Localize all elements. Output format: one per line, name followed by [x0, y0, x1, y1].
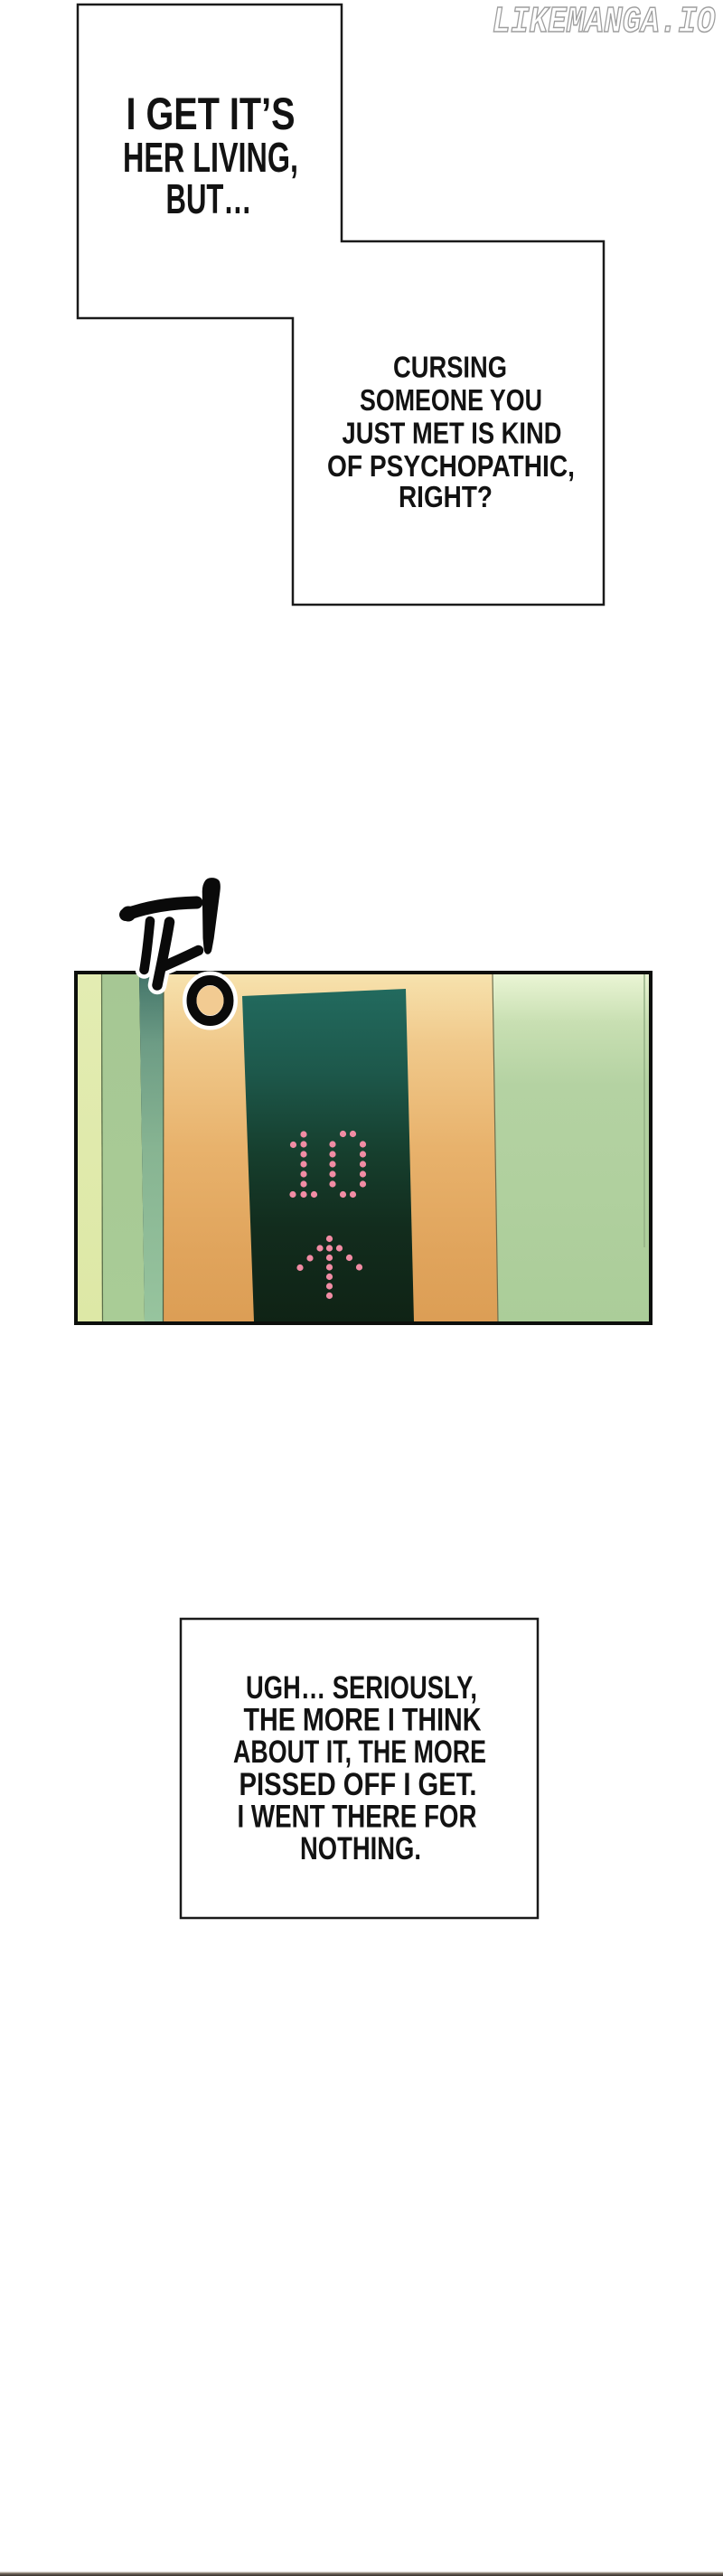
- svg-text:SOMEONE YOU: SOMEONE YOU: [360, 383, 542, 417]
- svg-text:PISSED OFF I GET.: PISSED OFF I GET.: [239, 1767, 477, 1802]
- svg-text:LIKEMANGA.IO: LIKEMANGA.IO: [493, 2, 716, 43]
- svg-text:CURSING: CURSING: [393, 351, 507, 384]
- svg-text:UGH… SERIOUSLY,: UGH… SERIOUSLY,: [246, 1670, 477, 1706]
- svg-text:I WENT THERE FOR: I WENT THERE FOR: [238, 1799, 477, 1834]
- svg-text:ABOUT IT, THE MORE: ABOUT IT, THE MORE: [233, 1735, 486, 1770]
- svg-text:NOTHING.: NOTHING.: [300, 1831, 421, 1866]
- svg-text:BUT…: BUT…: [166, 175, 252, 222]
- svg-text:OF PSYCHOPATHIC,: OF PSYCHOPATHIC,: [327, 449, 575, 483]
- svg-text:I GET IT’S: I GET IT’S: [127, 89, 296, 139]
- svg-text:RIGHT?: RIGHT?: [399, 480, 493, 513]
- svg-text:HER LIVING,: HER LIVING,: [123, 134, 298, 181]
- svg-text:JUST MET IS KIND: JUST MET IS KIND: [343, 417, 562, 450]
- svg-text:THE MORE I THINK: THE MORE I THINK: [244, 1703, 482, 1738]
